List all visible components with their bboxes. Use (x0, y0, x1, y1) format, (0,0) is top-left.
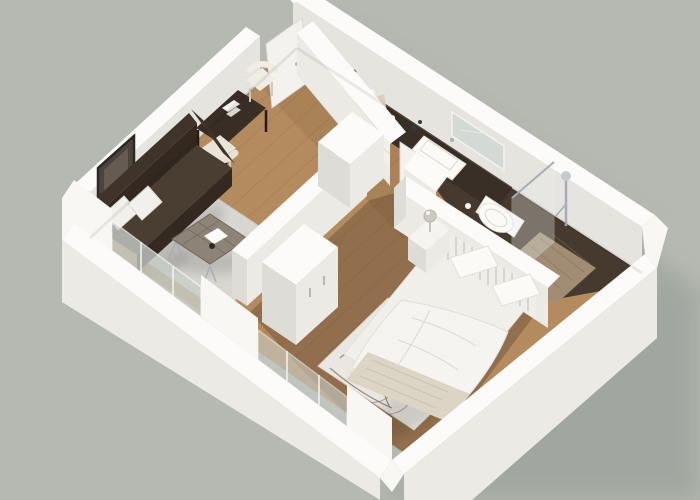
lamp-highlight (426, 211, 430, 215)
bottle-icon-2 (418, 120, 422, 124)
toilet-roll-icon (465, 203, 471, 209)
shower-head-icon (561, 171, 571, 181)
apartment-3d-floorplan (0, 0, 700, 500)
remote-icon (209, 243, 215, 249)
faucet-icon (450, 138, 454, 142)
floorplan-render (0, 0, 700, 500)
table-lamp-icon (424, 210, 436, 222)
